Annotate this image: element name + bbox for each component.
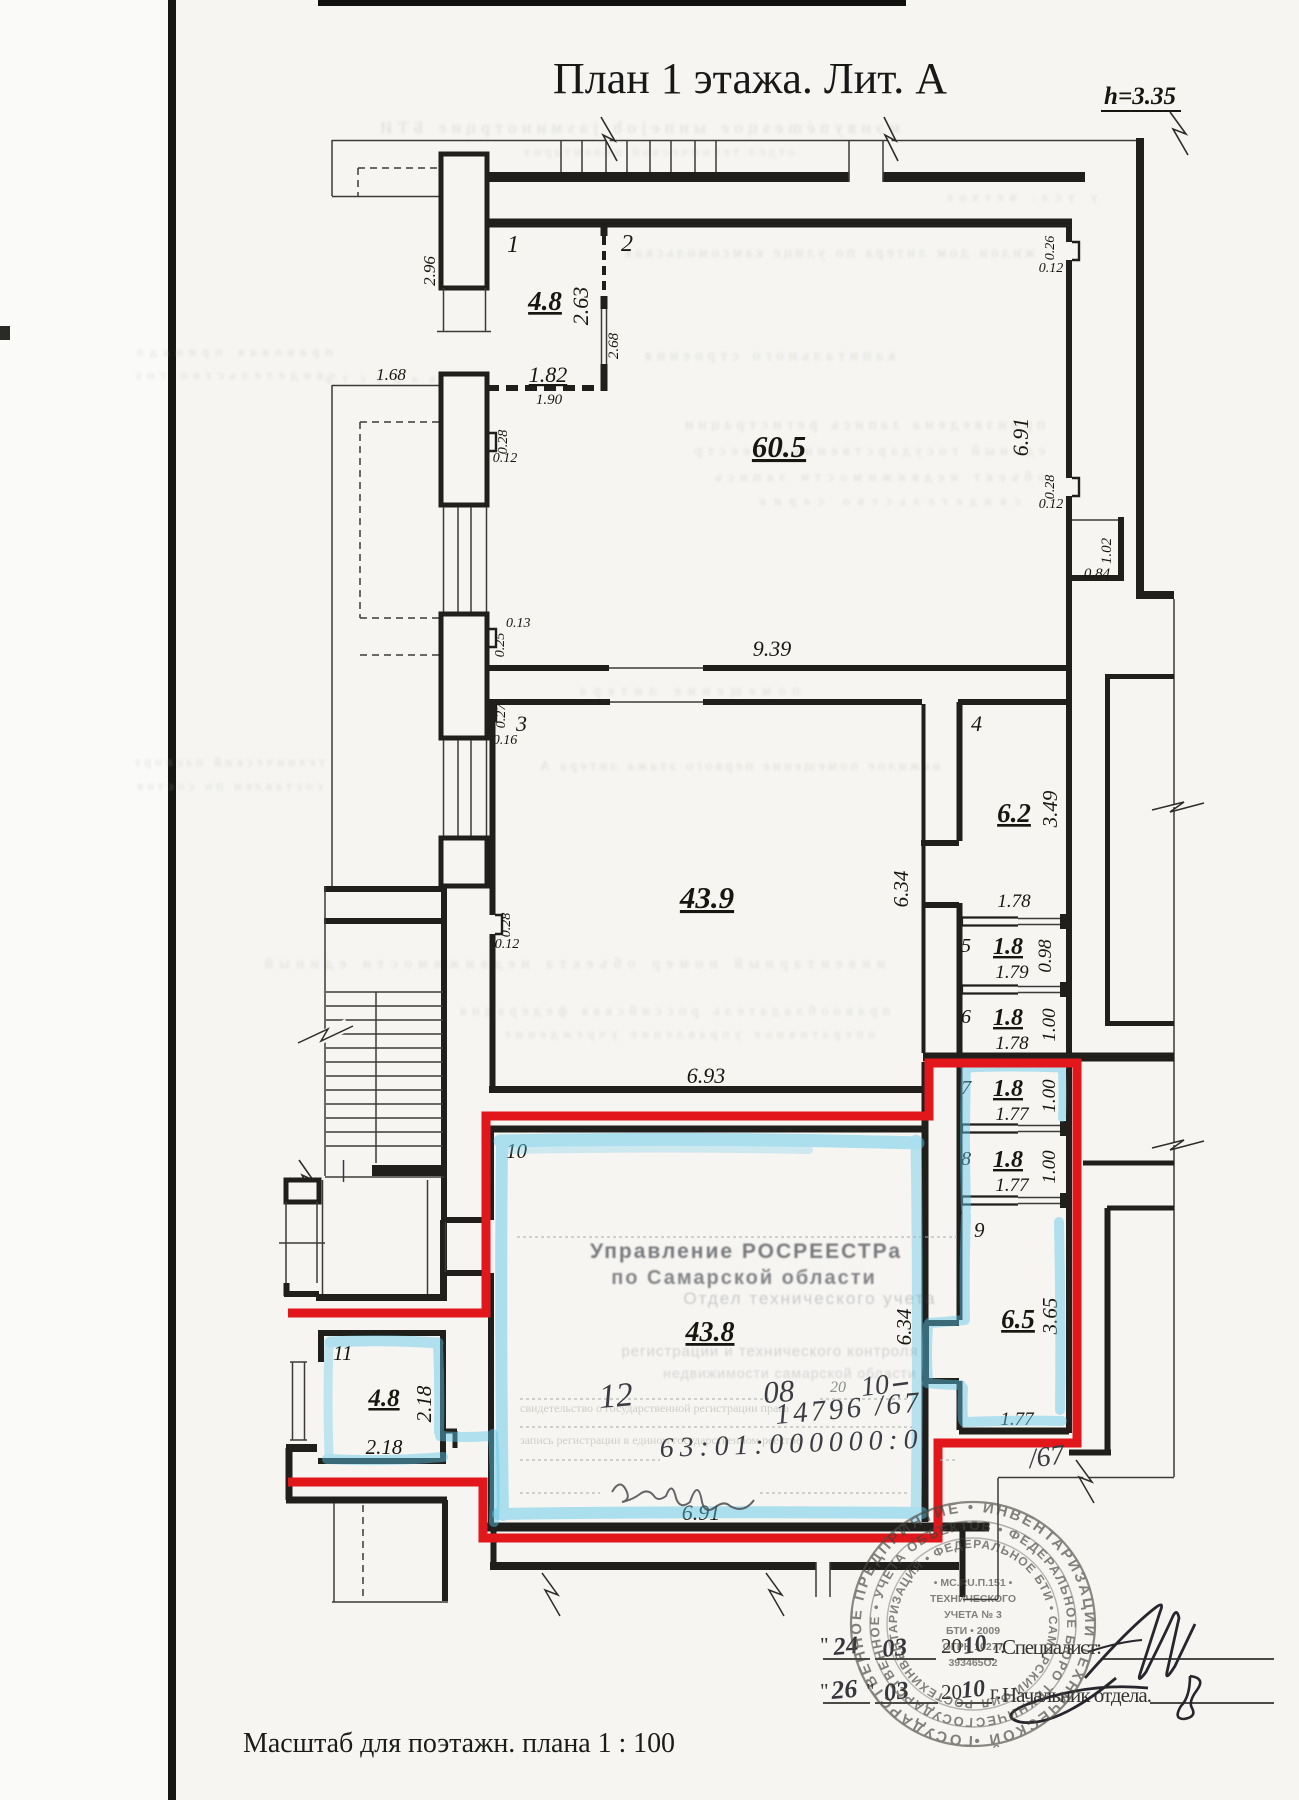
svg-text:свидетельство о государственно: свидетельство о государственной регистра… [520,1401,790,1415]
svg-text:План 1 этажа. Лит. А: План 1 этажа. Лит. А [553,54,947,103]
svg-text:1.77: 1.77 [995,1175,1030,1196]
svg-text:1.90: 1.90 [536,392,563,408]
svg-text:60.5: 60.5 [752,429,806,464]
svg-text:1.68: 1.68 [376,365,406,384]
svg-text:43.9: 43.9 [679,880,734,915]
svg-text:БТИ • 2009: БТИ • 2009 [946,1625,1000,1637]
svg-text:h=3.35: h=3.35 [1104,83,1176,110]
svg-text:0.12: 0.12 [1039,497,1064,512]
svg-text:• МС.RU.П.151 •: • МС.RU.П.151 • [934,1577,1013,1589]
svg-text:по Самарской области: по Самарской области [611,1267,877,1289]
svg-text:0.27: 0.27 [494,703,509,729]
svg-text:4.8: 4.8 [527,286,562,316]
svg-text:ТЕХНИЧЕСКОГО: ТЕХНИЧЕСКОГО [930,1593,1016,1605]
svg-text:1.79: 1.79 [995,962,1029,983]
svg-text:6.93: 6.93 [687,1063,726,1088]
svg-text:единый государственный реестр: единый государственный реестр [695,444,1045,459]
svg-text:3.49: 3.49 [1038,790,1062,828]
svg-text:1.77: 1.77 [995,1104,1030,1125]
svg-text:1.8: 1.8 [993,1005,1023,1031]
svg-text:2.18: 2.18 [412,1385,436,1422]
svg-text:помещение литера: помещение литера [579,684,800,699]
svg-text:1.00: 1.00 [1039,1079,1060,1113]
svg-text:0.28: 0.28 [1043,475,1058,500]
svg-text:1.78: 1.78 [995,1033,1029,1054]
svg-text:0.12: 0.12 [493,451,518,466]
svg-text:1.8: 1.8 [993,1147,1023,1173]
svg-text:Масштаб для поэтажн. плана 1: Масштаб для поэтажн. плана 1 : 100 [243,1728,675,1759]
svg-text:9.39: 9.39 [753,636,792,661]
svg-text:2.96: 2.96 [420,256,439,286]
svg-text:Отдел технического учета: Отдел технического учета [683,1289,936,1308]
svg-text:0.12: 0.12 [1039,261,1064,276]
svg-text:26: 26 [829,1674,858,1705]
svg-text:1.00: 1.00 [1039,1008,1060,1042]
svg-text:Управление РОСРЕЕСТРа: Управление РОСРЕЕСТРа [590,1240,902,1263]
svg-text:0.13: 0.13 [506,616,531,631]
svg-text:0.12: 0.12 [495,937,520,952]
svg-text:6.2: 6.2 [997,798,1031,828]
svg-text:ОГРН 10277: ОГРН 10277 [943,1641,1004,1653]
svg-text:0.26: 0.26 [1043,236,1058,261]
svg-text:6.91: 6.91 [1008,418,1033,457]
svg-text:5: 5 [961,935,971,957]
svg-text:1.82: 1.82 [529,362,568,387]
svg-text:/67: /67 [1025,1439,1068,1475]
svg-text:1.00: 1.00 [1039,1150,1060,1184]
svg-text:0.16: 0.16 [493,733,518,748]
svg-text:1.8: 1.8 [993,934,1023,960]
svg-text:": " [820,1633,829,1657]
svg-text:0.25: 0.25 [493,633,508,658]
svg-text:6.34: 6.34 [889,870,913,907]
svg-text:1.78: 1.78 [997,891,1031,912]
svg-text:12: 12 [597,1376,634,1416]
svg-text:4: 4 [971,711,982,736]
svg-text:1: 1 [507,232,519,258]
svg-text:1.02: 1.02 [1099,537,1115,564]
svg-text:отдел технической инвентариз: отдел технической инвентариз [525,145,795,160]
svg-text:1.8: 1.8 [993,1076,1023,1102]
svg-text:регистрации и технического кон: регистрации и технического контроля [621,1343,918,1360]
svg-text:0.84: 0.84 [1084,566,1111,582]
svg-text:": " [820,1679,829,1703]
svg-text:0.28: 0.28 [499,913,514,938]
svg-text:2: 2 [621,231,633,257]
svg-text:свидетельство гос: свидетельство гос [135,367,335,382]
svg-text:393465О2: 393465О2 [948,1657,997,1669]
svg-text:0.98: 0.98 [1035,939,1056,973]
svg-text:4.8: 4.8 [367,1385,400,1412]
svg-text:2.63: 2.63 [568,287,593,326]
svg-text:9: 9 [974,1218,985,1242]
svg-text:УЧЕТА № 3: УЧЕТА № 3 [944,1609,1002,1621]
svg-text:2.68: 2.68 [606,332,622,359]
svg-text:6.5: 6.5 [1001,1304,1035,1334]
svg-text:6: 6 [961,1006,971,1028]
